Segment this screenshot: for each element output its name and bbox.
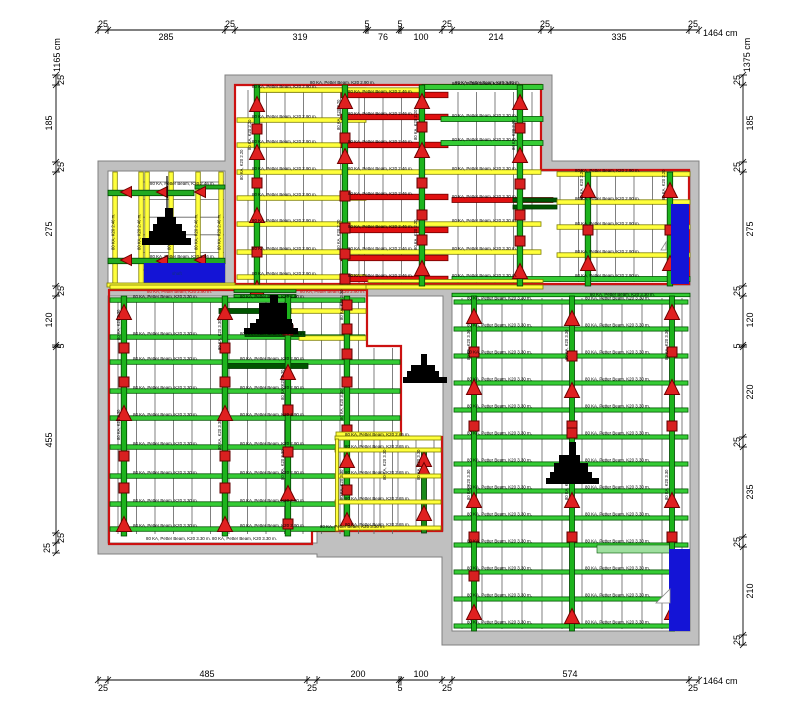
- svg-text:80 KA, Petter Beam, K20 3.30 m: 80 KA, Petter Beam, K20 3.30 m.: [133, 441, 198, 446]
- svg-text:80 KA, Petter Beam, K20 2.65 m: 80 KA, Petter Beam, K20 2.65 m.: [345, 432, 410, 437]
- svg-text:25: 25: [42, 543, 52, 553]
- svg-text:100: 100: [413, 669, 428, 679]
- svg-text:80 KA, Petter Beam, K20 3.30 m: 80 KA, Petter Beam, K20 3.30 m.: [585, 539, 650, 544]
- svg-text:25: 25: [732, 635, 742, 645]
- svg-text:80 KA, Petter Beam, K20 3.30 m: 80 KA, Petter Beam, K20 3.30 m.: [467, 458, 532, 463]
- svg-text:80 KA, Petter Beam, K20 2.90 m: 80 KA, Petter Beam, K20 2.90 m.: [240, 470, 305, 475]
- svg-text:80 KA, Petter Beam, K20 2.90 m: 80 KA, Petter Beam, K20 2.90 m.: [240, 294, 305, 299]
- svg-text:1464 cm: 1464 cm: [703, 676, 738, 686]
- svg-text:185: 185: [745, 115, 755, 130]
- svg-text:5: 5: [397, 683, 402, 693]
- svg-text:319: 319: [292, 32, 307, 42]
- svg-text:80 KA, K20 3.30: 80 KA, K20 3.30: [664, 469, 669, 500]
- svg-text:1464 cm: 1464 cm: [703, 28, 738, 38]
- svg-text:80 KA, Petter Beam, K20 3.30 m: 80 KA, Petter Beam, K20 3.30 m.: [467, 404, 532, 409]
- svg-text:5: 5: [397, 19, 402, 29]
- svg-text:80 KA, Petter Beam, K20 2.90 m: 80 KA, Petter Beam, K20 2.90 m.: [310, 80, 375, 85]
- svg-text:80 KA, K20 3.30: 80 KA, K20 3.30: [116, 409, 121, 440]
- svg-text:80 KA, Petter Beam, K20 3.30 m: 80 KA, Petter Beam, K20 3.30 m.: [585, 593, 650, 598]
- svg-text:80 KA, Petter Beam, K20 2.65 m: 80 KA, Petter Beam, K20 2.65 m.: [345, 496, 410, 501]
- svg-text:80 KA, Petter Beam, K20 2.90 m: 80 KA, Petter Beam, K20 2.90 m.: [575, 221, 640, 226]
- svg-text:80 KA, K20 2.46 m.: 80 KA, K20 2.46 m.: [167, 214, 172, 250]
- svg-text:80 KA, Petter Beam, K20 3.30 m: 80 KA, Petter Beam, K20 3.30 m.: [452, 218, 517, 223]
- svg-text:80 KA, Petter Beam, K20 2.46 m: 80 KA, Petter Beam, K20 2.46 m.: [348, 89, 413, 94]
- svg-text:80 KA, Petter Beam, K20 3.30 m: 80 KA, Petter Beam, K20 3.30 m.: [585, 350, 650, 355]
- svg-text:80 KA, Petter Beam, K20 3.30 m: 80 KA, Petter Beam, K20 3.30 m.: [133, 356, 198, 361]
- svg-text:80 KA, K20 3.30: 80 KA, K20 3.30: [217, 419, 222, 450]
- svg-text:80 KA, Petter Beam, K20 3.30 m: 80 KA, Petter Beam, K20 3.30 m.: [585, 566, 650, 571]
- svg-text:80 KA, K20 2.46 m.: 80 KA, K20 2.46 m.: [137, 214, 142, 250]
- svg-text:80 KA, K20 2.20: 80 KA, K20 2.20: [661, 169, 666, 200]
- svg-text:80 KA, Petter Beam, K20 2.90 m: 80 KA, Petter Beam, K20 2.90 m.: [240, 498, 305, 503]
- svg-text:80 KA, Petter Beam, K20 2.90 m: 80 KA, Petter Beam, K20 2.90 m.: [240, 523, 305, 528]
- svg-text:80 KA, K20 3.30: 80 KA, K20 3.30: [466, 329, 471, 360]
- svg-text:1165 cm: 1165 cm: [52, 38, 62, 72]
- svg-text:80 KA, Petter Beam, K20 3.30 m: 80 KA, Petter Beam, K20 3.30 m.: [585, 323, 650, 328]
- svg-text:80 KA, Petter Beam, K20 3.30 m: 80 KA, Petter Beam, K20 3.30 m.: [133, 385, 198, 390]
- svg-text:80 KA, Petter Beam, K20 3.30 m: 80 KA, Petter Beam, K20 3.30 m.: [133, 294, 198, 299]
- svg-text:80 KA, Petter Beam, K20 2.90 m: 80 KA, Petter Beam, K20 2.90 m.: [575, 196, 640, 201]
- svg-text:76: 76: [378, 32, 388, 42]
- svg-text:220: 220: [745, 384, 755, 399]
- svg-text:5: 5: [732, 343, 742, 348]
- svg-text:25: 25: [732, 75, 742, 85]
- svg-text:80 KA, Petter Beam, K20 2.90 m: 80 KA, Petter Beam, K20 2.90 m.: [252, 114, 317, 119]
- svg-text:80 KA, Petter Beam, K20 3.30 m: 80 KA, Petter Beam, K20 3.30 m.: [452, 166, 517, 171]
- svg-text:80 KA, K20 3.30: 80 KA, K20 3.30: [564, 329, 569, 360]
- svg-text:80 KA, Petter Beam, K20 2.90 m: 80 KA, Petter Beam, K20 2.90 m.: [575, 249, 640, 254]
- svg-text:100: 100: [413, 32, 428, 42]
- svg-text:80 KA, Petter Beam, K20 3.30 m: 80 KA, Petter Beam, K20 3.30 m.: [585, 404, 650, 409]
- svg-text:25: 25: [307, 683, 317, 693]
- svg-text:80 KA, K20 2.20: 80 KA, K20 2.20: [413, 219, 418, 250]
- svg-text:80 KA, Petter Beam, K20 3.30 m: 80 KA, Petter Beam, K20 3.30 m.: [452, 113, 517, 118]
- svg-text:80 KA, Petter Beam, K20 3.30 m: 80 KA, Petter Beam, K20 3.30 m.: [585, 512, 650, 517]
- svg-text:25: 25: [732, 286, 742, 296]
- svg-text:shaft: shaft: [172, 271, 183, 276]
- svg-text:80 KA, Petter Beam, K20 2.46 m: 80 KA, Petter Beam, K20 2.46 m.: [348, 191, 413, 196]
- svg-text:80 KA, K20 2.20: 80 KA, K20 2.20: [336, 219, 341, 250]
- svg-text:80 KA, Petter Beam, K20 3.30 m: 80 KA, Petter Beam, K20 3.30 m.: [585, 458, 650, 463]
- svg-text:25: 25: [540, 19, 550, 29]
- svg-text:80 KA, Petter Beam, K20 2.90 m: 80 KA, Petter Beam, K20 2.90 m.: [252, 84, 317, 89]
- svg-text:80 KA, Petter Beam, K20 3.30 m: 80 KA, Petter Beam, K20 3.30 m.: [452, 137, 517, 142]
- svg-text:485: 485: [199, 669, 214, 679]
- svg-text:80 KA, K20 3.30: 80 KA, K20 3.30: [339, 289, 344, 320]
- svg-text:80 KA, K20 2.20: 80 KA, K20 2.20: [336, 99, 341, 130]
- svg-text:80 KA, Petter Beam, K20 3.30 m: 80 KA, Petter Beam, K20 3.30 m.: [146, 536, 211, 541]
- svg-text:120: 120: [745, 312, 755, 327]
- svg-text:80 KA, Petter Beam, K20 3.30 m: 80 KA, Petter Beam, K20 3.30 m.: [590, 292, 655, 297]
- svg-text:80 KA, Petter Beam, K20 3.30 m: 80 KA, Petter Beam, K20 3.30 m.: [467, 512, 532, 517]
- svg-text:235: 235: [745, 484, 755, 499]
- svg-text:80 KA, Petter Beam, K20 3.30 m: 80 KA, Petter Beam, K20 3.30 m.: [585, 485, 650, 490]
- svg-text:5: 5: [364, 19, 369, 29]
- svg-text:25: 25: [732, 162, 742, 172]
- svg-text:80 KA, Petter Beam, K20 2.90 m: 80 KA, Petter Beam, K20 2.90 m.: [575, 168, 640, 173]
- svg-text:25: 25: [225, 19, 235, 29]
- svg-text:80 KA, K20 3.30: 80 KA, K20 3.30: [416, 449, 421, 480]
- svg-text:25: 25: [56, 162, 66, 172]
- svg-text:214: 214: [488, 32, 503, 42]
- svg-text:574: 574: [562, 669, 577, 679]
- svg-text:200: 200: [350, 669, 365, 679]
- svg-text:25: 25: [688, 19, 698, 29]
- svg-text:25: 25: [442, 19, 452, 29]
- svg-text:455: 455: [44, 432, 54, 447]
- svg-text:80 KA, Petter Beam, K20 2.46 m: 80 KA, Petter Beam, K20 2.46 m.: [348, 273, 413, 278]
- svg-text:80 KA, Petter Beam, K20 2.90 m: 80 KA, Petter Beam, K20 2.90 m.: [240, 331, 305, 336]
- svg-text:80 KA, K20 3.30: 80 KA, K20 3.30: [339, 469, 344, 500]
- svg-text:80 KA, Petter Beam, K20 2.90 m: 80 KA, Petter Beam, K20 2.90 m.: [240, 385, 305, 390]
- svg-text:80 KA, Petter Beam, K20 2.90 m: 80 KA, Petter Beam, K20 2.90 m.: [575, 273, 640, 278]
- svg-text:80 KA, Petter Beam, K20 2.90 m: 80 KA, Petter Beam, K20 2.90 m.: [240, 412, 305, 417]
- svg-text:80 KA, Petter Beam, K20 3.30 m: 80 KA, Petter Beam, K20 3.30 m.: [467, 431, 532, 436]
- svg-text:80 KA, Petter Beam, K20 3.30 m: 80 KA, Petter Beam, K20 3.30 m.: [133, 498, 198, 503]
- svg-text:80 KA, Petter Beam, K20 2.90 m: 80 KA, Petter Beam, K20 2.90 m.: [252, 218, 317, 223]
- svg-text:80 KA, K20 3.30: 80 KA, K20 3.30: [466, 469, 471, 500]
- svg-text:80 KA, K20 2.20: 80 KA, K20 2.20: [239, 149, 244, 180]
- svg-text:80 KA, Petter Beam, K20 3.30 m: 80 KA, Petter Beam, K20 3.30 m.: [467, 566, 532, 571]
- svg-text:80 KA, Petter Beam, K20 3.30 m: 80 KA, Petter Beam, K20 3.30 m.: [585, 620, 650, 625]
- svg-text:80 KA, Petter Beam, K20 2.46 m: 80 KA, Petter Beam, K20 2.46 m.: [348, 224, 413, 229]
- svg-text:80 KA, Petter Beam, K20 3.30 m: 80 KA, Petter Beam, K20 3.30 m.: [467, 350, 532, 355]
- svg-text:80 KA, Petter Beam, K20 3.30 m: 80 KA, Petter Beam, K20 3.30 m.: [452, 273, 517, 278]
- svg-text:80 KA, Petter Beam, K20 3.30 m: 80 KA, Petter Beam, K20 3.30 m.: [467, 323, 532, 328]
- svg-text:80 KA, Petter Beam, K20 2.46 m: 80 KA, Petter Beam, K20 2.46 m.: [150, 254, 215, 259]
- svg-text:25: 25: [732, 537, 742, 547]
- svg-text:80 KA, K20 2.46 m.: 80 KA, K20 2.46 m.: [194, 214, 199, 250]
- svg-text:80 KA, Petter Beam, K20 3.30 m: 80 KA, Petter Beam, K20 3.30 m.: [467, 593, 532, 598]
- svg-text:80 KA, Petter Beam, K20 2.90 m: 80 KA, Petter Beam, K20 2.90 m.: [240, 441, 305, 446]
- svg-text:5: 5: [56, 343, 66, 348]
- svg-text:80 KA, Petter Beam, K20 3.30 m: 80 KA, Petter Beam, K20 3.30 m.: [467, 296, 532, 301]
- svg-text:25: 25: [98, 19, 108, 29]
- svg-text:285: 285: [158, 32, 173, 42]
- svg-text:25: 25: [732, 437, 742, 447]
- svg-text:80 KA, K20 2.20: 80 KA, K20 2.20: [511, 119, 516, 150]
- svg-text:80 KA, K20 3.30: 80 KA, K20 3.30: [564, 469, 569, 500]
- svg-text:80 KA, Petter Beam, K20 3.30 m: 80 KA, Petter Beam, K20 3.30 m.: [467, 485, 532, 490]
- svg-text:80 KA, Petter Beam, K20 3.30 m: 80 KA, Petter Beam, K20 3.30 m.: [467, 539, 532, 544]
- svg-text:185: 185: [44, 115, 54, 130]
- svg-text:80 KA, K20 2.20: 80 KA, K20 2.20: [413, 109, 418, 140]
- svg-text:80 KA, Petter Beam, K20 2.46 m: 80 KA, Petter Beam, K20 2.46 m.: [150, 181, 215, 186]
- svg-text:80 KA, K20 3.30: 80 KA, K20 3.30: [664, 329, 669, 360]
- svg-text:80 KA, Petter Beam, K20 3.30 m: 80 KA, Petter Beam, K20 3.30 m.: [467, 620, 532, 625]
- svg-text:80 KA, Petter Beam, K20 2.46 m: 80 KA, Petter Beam, K20 2.46 m.: [348, 166, 413, 171]
- svg-text:80 KA, K20 3.30: 80 KA, K20 3.30: [280, 449, 285, 480]
- svg-text:80 KA, K20 2.20: 80 KA, K20 2.20: [247, 119, 252, 150]
- svg-text:80 KA, Petter Beam, K20 2.90 m: 80 KA, Petter Beam, K20 2.90 m.: [252, 271, 317, 276]
- svg-text:80 KA, Petter Beam, K20 3.30 m: 80 KA, Petter Beam, K20 3.30 m.: [133, 470, 198, 475]
- svg-text:25: 25: [442, 683, 452, 693]
- svg-text:80 KA, Petter Beam, K20 2.90 m: 80 KA, Petter Beam, K20 2.90 m.: [252, 192, 317, 197]
- svg-text:80 KA, Petter Beam, K20 2.90 m: 80 KA, Petter Beam, K20 2.90 m.: [252, 246, 317, 251]
- svg-text:1375 cm: 1375 cm: [742, 38, 752, 73]
- svg-text:275: 275: [44, 221, 54, 236]
- svg-text:120: 120: [44, 312, 54, 327]
- svg-text:80 KA, Petter Beam, K20 3.30 m: 80 KA, Petter Beam, K20 3.30 m.: [133, 523, 198, 528]
- svg-text:80 KA, Petter Beam, K20 3.30 m: 80 KA, Petter Beam, K20 3.30 m.: [467, 377, 532, 382]
- svg-text:25: 25: [56, 533, 66, 543]
- svg-text:275: 275: [745, 221, 755, 236]
- svg-text:80 KA, K20 2.46 m.: 80 KA, K20 2.46 m.: [217, 214, 222, 250]
- svg-text:80 KA, Petter Beam, K20 3.30 m: 80 KA, Petter Beam, K20 3.30 m.: [452, 194, 517, 199]
- svg-text:25: 25: [98, 683, 108, 693]
- svg-text:80 KA, Petter Beam, K20 2.90 m: 80 KA, Petter Beam, K20 2.90 m.: [300, 289, 365, 294]
- svg-text:80 KA, K20 3.30: 80 KA, K20 3.30: [217, 319, 222, 350]
- svg-text:80 KA, K20 2.46 m.: 80 KA, K20 2.46 m.: [111, 214, 116, 250]
- svg-text:80 KA, Petter Beam, K20 3.30 m: 80 KA, Petter Beam, K20 3.30 m.: [320, 524, 385, 529]
- svg-text:80 KA, Petter Beam, K20 2.46 m: 80 KA, Petter Beam, K20 2.46 m.: [348, 111, 413, 116]
- svg-text:80 KA, Petter Beam, K20 3.30 m: 80 KA, Petter Beam, K20 3.30 m.: [585, 377, 650, 382]
- svg-text:80 KA, Petter Beam, K20 3.30 m: 80 KA, Petter Beam, K20 3.30 m.: [133, 331, 198, 336]
- svg-text:80 KA, Petter Beam, K20 2.46 m: 80 KA, Petter Beam, K20 2.46 m.: [348, 246, 413, 251]
- svg-text:80 KA, Petter Beam, K20 3.30 m: 80 KA, Petter Beam, K20 3.30 m.: [585, 431, 650, 436]
- svg-text:80 KA, Petter Beam, K20 3.30 m: 80 KA, Petter Beam, K20 3.30 m.: [452, 246, 517, 251]
- svg-text:25: 25: [56, 286, 66, 296]
- svg-text:80 KA, Petter Beam, K20 3.30 m: 80 KA, Petter Beam, K20 3.30 m.: [212, 536, 277, 541]
- svg-text:25: 25: [688, 683, 698, 693]
- svg-text:80 KA, Petter Beam, K20 2.46 m: 80 KA, Petter Beam, K20 2.46 m.: [348, 139, 413, 144]
- svg-text:335: 335: [611, 32, 626, 42]
- svg-text:80 KA, K20 3.30: 80 KA, K20 3.30: [116, 309, 121, 340]
- svg-text:80 KA, K20 3.30: 80 KA, K20 3.30: [339, 389, 344, 420]
- svg-text:80 KA, Petter Beam, K20 2.90 m: 80 KA, Petter Beam, K20 2.90 m.: [252, 139, 317, 144]
- svg-text:80 KA, Petter Beam, K20 2.90 m: 80 KA, Petter Beam, K20 2.90 m.: [240, 356, 305, 361]
- svg-text:80 KA, Petter Beam, K20 3.30 m: 80 KA, Petter Beam, K20 3.30 m.: [133, 412, 198, 417]
- svg-text:80 KA, K20 3.30: 80 KA, K20 3.30: [280, 369, 285, 400]
- svg-text:80 KA, Petter Beam, K20 2.90 m: 80 KA, Petter Beam, K20 2.90 m.: [252, 166, 317, 171]
- svg-text:25: 25: [56, 75, 66, 85]
- svg-text:80 KA, Petter Beam, K20 2.65 m: 80 KA, Petter Beam, K20 2.65 m.: [345, 444, 410, 449]
- svg-text:80 KA, Petter Beam, K20 3.30 m: 80 KA, Petter Beam, K20 3.30 m.: [455, 80, 520, 85]
- svg-text:80 KA, Petter Beam, K20 2.65 m: 80 KA, Petter Beam, K20 2.65 m.: [345, 470, 410, 475]
- svg-text:80 KA, K20 2.20: 80 KA, K20 2.20: [579, 169, 584, 200]
- svg-text:210: 210: [745, 583, 755, 598]
- svg-text:80 KA, K20 3.30: 80 KA, K20 3.30: [382, 449, 387, 480]
